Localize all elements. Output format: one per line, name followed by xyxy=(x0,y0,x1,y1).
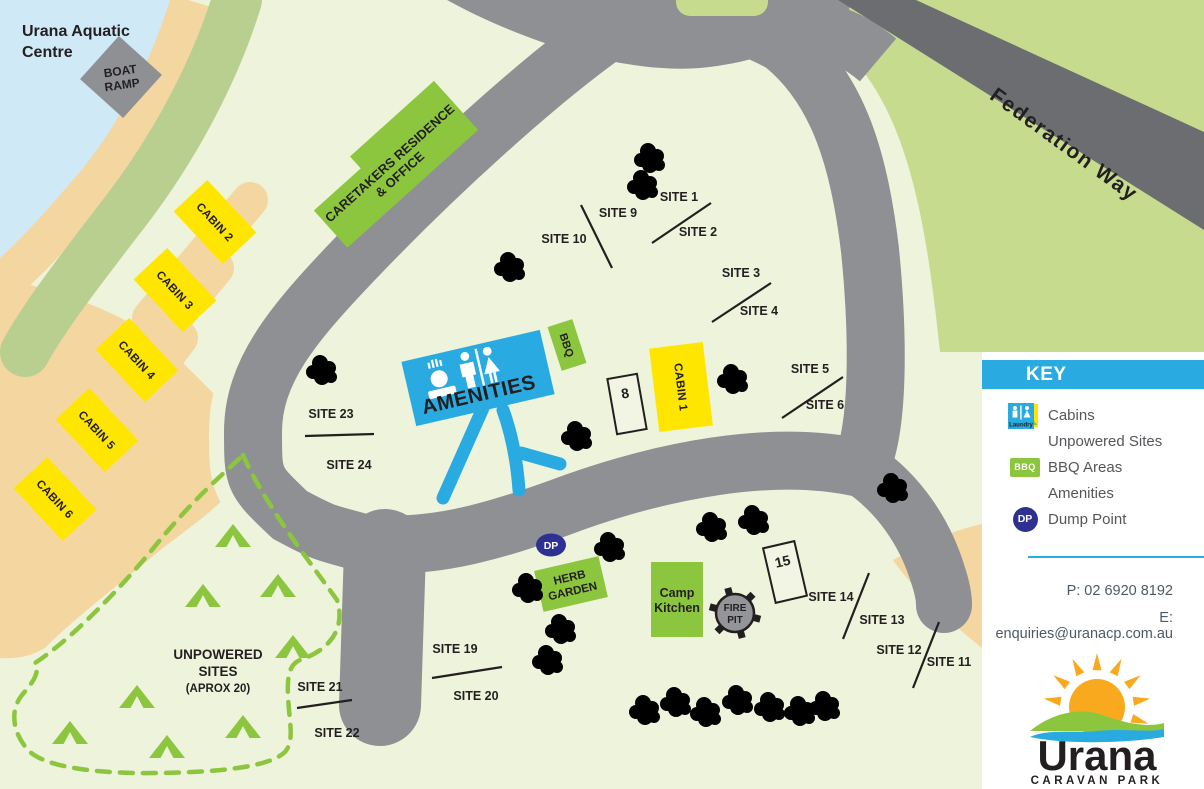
urana-logo: Urana CARAVAN PARK xyxy=(1002,645,1192,789)
unpowered-label-line3: (APROX 20) xyxy=(186,683,251,695)
connector-road xyxy=(760,30,878,60)
logo-name: Urana xyxy=(1037,732,1157,779)
camp-kitchen-label-line1: Camp xyxy=(660,586,695,600)
legend-label: BBQ Areas xyxy=(1042,459,1122,476)
site-label-3: SITE 3 xyxy=(722,266,760,280)
site-label-9: SITE 9 xyxy=(599,206,637,220)
cabin-1: CABIN 1 xyxy=(649,342,713,432)
site-label-21: SITE 21 xyxy=(297,680,342,694)
site-label-11: SITE 11 xyxy=(927,655,972,669)
unpowered-label-line1: UNPOWERED xyxy=(173,647,263,662)
cul-de-sac-road xyxy=(380,550,385,705)
site-label-23: SITE 23 xyxy=(308,407,353,421)
key-title: KEY xyxy=(1026,364,1067,385)
unpowered-label-line2: SITES xyxy=(198,664,237,679)
entrance-median xyxy=(676,0,768,16)
site-label-5: SITE 5 xyxy=(791,362,829,376)
email-address: E: enquiries@uranacp.com.au xyxy=(982,610,1173,642)
site-label-2: SITE 2 xyxy=(679,225,717,239)
site-label-19: SITE 19 xyxy=(432,642,477,656)
fire-pit-label-line1: FIRE xyxy=(724,603,747,614)
site-label-20: SITE 20 xyxy=(453,689,498,703)
legend-label: Amenities xyxy=(1042,485,1114,502)
dump-point-label: DP xyxy=(544,540,559,552)
phone-number: P: 02 6920 8192 xyxy=(982,583,1173,599)
legend-item-unpowered-sites: Unpowered Sites xyxy=(1008,429,1204,455)
site-label-4: SITE 4 xyxy=(740,304,778,318)
site-label-10: SITE 10 xyxy=(541,232,586,246)
site-label-24: SITE 24 xyxy=(326,458,371,472)
logo-subtitle: CARAVAN PARK xyxy=(1031,775,1164,787)
key-legend: Cabins Unpowered Sites BBQ BBQ Areas Lau… xyxy=(1008,403,1204,532)
dump-point: DP xyxy=(536,534,566,557)
amenities-icon-text: Laundry xyxy=(1009,423,1033,429)
aquatic-centre-label-line2: Centre xyxy=(22,44,73,61)
legend-item-amenities: Laundry Amenities xyxy=(1008,480,1204,506)
amenities-icon: Laundry xyxy=(1008,403,1034,429)
site-label-22: SITE 22 xyxy=(314,726,359,740)
legend-item-dump-point: DP Dump Point xyxy=(1008,506,1204,532)
legend-label: Unpowered Sites xyxy=(1042,433,1162,450)
caravan-park-map: Federation Way UNPOWERED SITES (APROX 20… xyxy=(0,0,1204,789)
legend-label: Cabins xyxy=(1042,407,1095,424)
legend-label: Dump Point xyxy=(1042,511,1126,528)
key-header: KEY xyxy=(982,360,1204,389)
bbq-icon: BBQ xyxy=(1010,458,1040,477)
legend-item-bbq-areas: BBQ BBQ Areas xyxy=(1008,455,1204,481)
site-label-12: SITE 12 xyxy=(876,643,921,657)
camp-kitchen: Camp Kitchen xyxy=(651,562,703,637)
aquatic-centre-label-line1: Urana Aquatic xyxy=(22,23,130,40)
camp-kitchen-label-line2: Kitchen xyxy=(654,601,700,615)
site-label-13: SITE 13 xyxy=(859,613,904,627)
fire-pit-label-line2: PIT xyxy=(727,615,743,626)
site-label-6: SITE 6 xyxy=(806,398,844,412)
panel-divider xyxy=(1028,556,1204,558)
dump-point-icon: DP xyxy=(1013,507,1038,532)
site-label-14: SITE 14 xyxy=(808,590,853,604)
site-label-1: SITE 1 xyxy=(660,190,698,204)
